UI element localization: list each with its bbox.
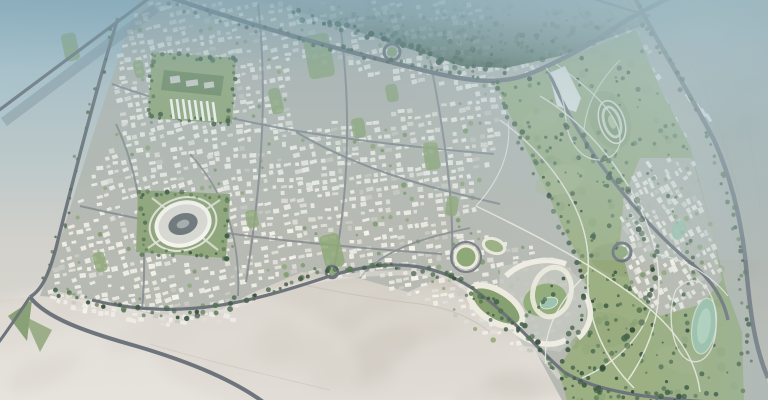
masterplan-aerial-map (0, 0, 768, 400)
haze (0, 0, 768, 400)
masterplan-svg (0, 0, 768, 400)
haze-right-edge (640, 0, 768, 400)
